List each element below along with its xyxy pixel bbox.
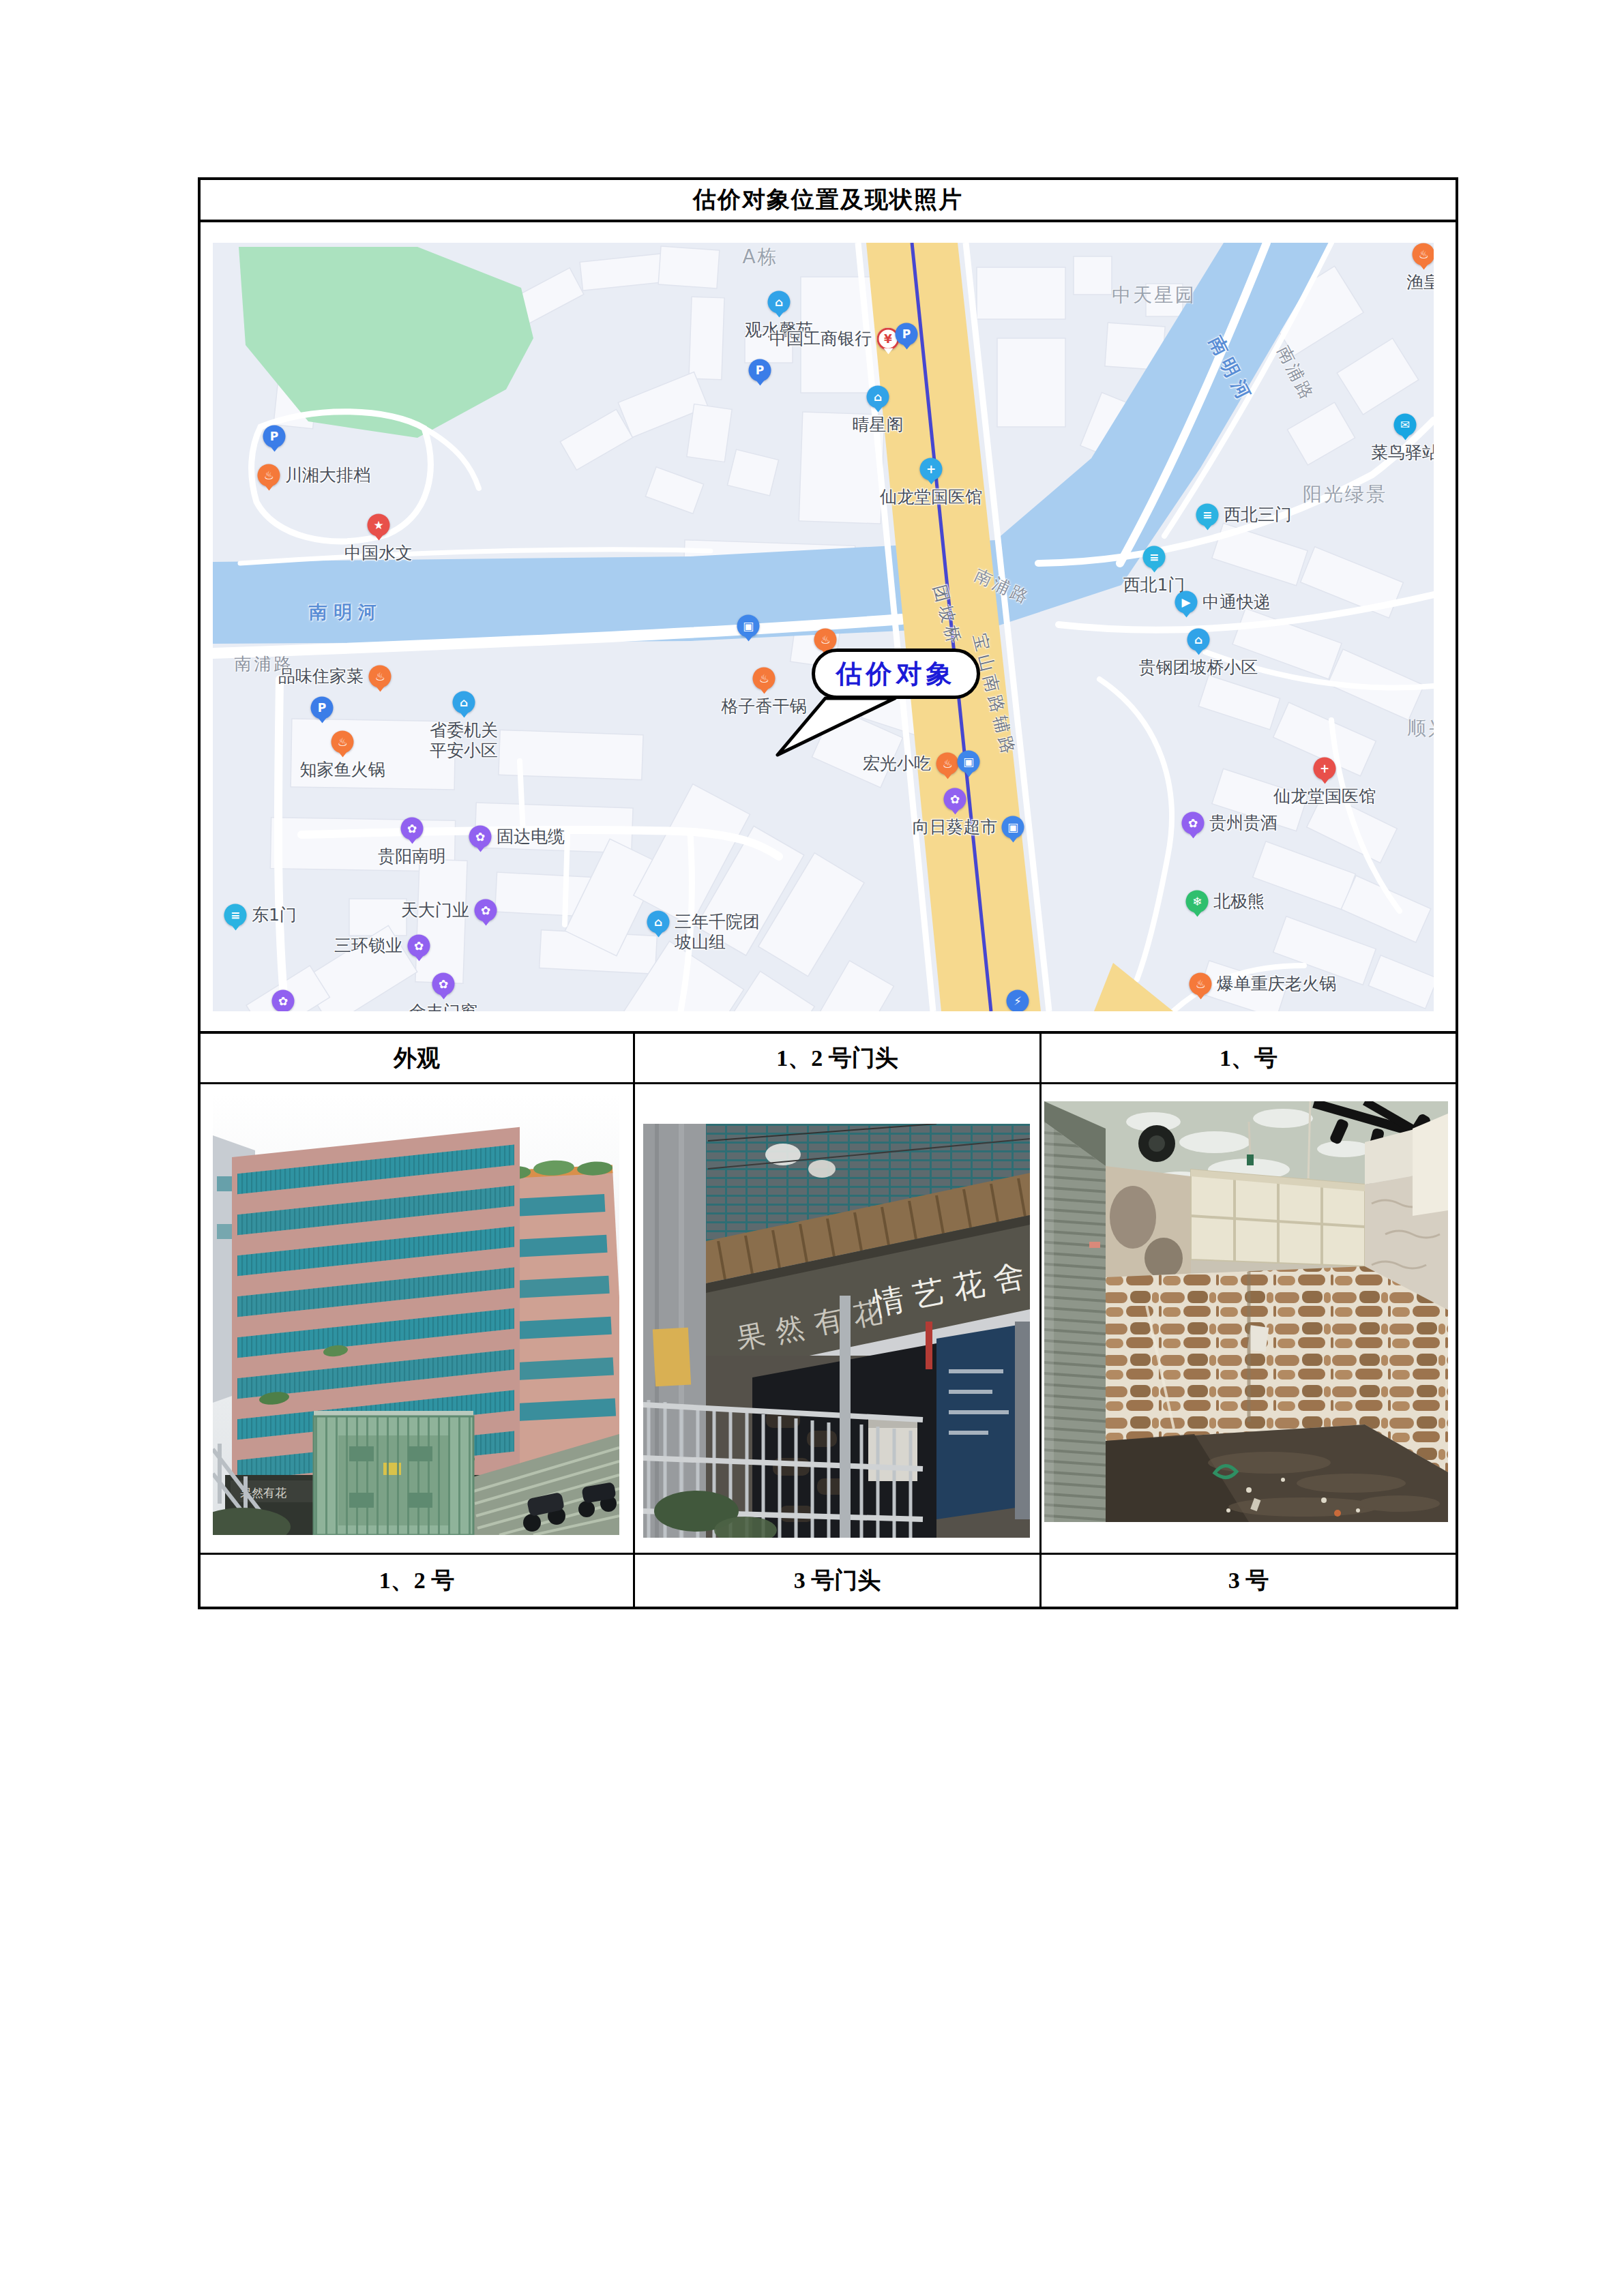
photo-caption: 3 号 xyxy=(1228,1565,1269,1596)
callout-text: 估价对象 xyxy=(836,657,956,691)
bus-stop-icon: ▣ xyxy=(958,751,980,773)
map-poi-label: 东1门 xyxy=(252,905,297,925)
icon-glyph: ♨ xyxy=(820,634,830,646)
hanging-board xyxy=(1413,1114,1448,1216)
interior-photo-illustration xyxy=(1044,1101,1448,1522)
bus-stop-icon: ▣ xyxy=(737,615,760,638)
map-poi-label: 中国工商银行 xyxy=(769,329,872,349)
icon-glyph: ▣ xyxy=(743,621,754,632)
parking-icon: P xyxy=(263,426,286,448)
gate-icon: ≡ xyxy=(1143,546,1166,569)
building-icon: ⌂ xyxy=(867,386,889,408)
photo-location-table: 估价对象位置及现状照片 xyxy=(198,177,1458,1609)
star-place-icon: ★ xyxy=(368,514,390,537)
icon-glyph: ⌂ xyxy=(775,297,783,308)
icon-glyph: + xyxy=(926,464,936,475)
icon-glyph: ≡ xyxy=(231,910,240,921)
column-header: 1、号 xyxy=(1220,1043,1278,1074)
icon-glyph: ⌂ xyxy=(1194,634,1202,646)
map-poi-label: 天大门业 xyxy=(401,900,469,921)
map-poi-label: 爆单重庆老火锅 xyxy=(1217,974,1336,994)
restaurant-icon: ♨ xyxy=(1413,243,1434,266)
icon-glyph: ✿ xyxy=(278,996,288,1007)
shop-icon: ✿ xyxy=(272,990,295,1012)
gate-icon: ≡ xyxy=(224,904,247,927)
exterior-photo: 果然有花 情艺花舍 xyxy=(213,1094,619,1535)
icon-glyph: ✿ xyxy=(1188,818,1198,829)
icon-glyph: ♨ xyxy=(942,758,952,770)
icon-glyph: ▣ xyxy=(1007,822,1018,833)
exterior-photo-illustration: 果然有花 情艺花舍 xyxy=(213,1094,619,1535)
restaurant-icon: ♨ xyxy=(814,629,837,651)
icon-glyph: ✿ xyxy=(439,979,448,990)
icon-glyph: ♨ xyxy=(374,671,385,683)
map-poi-label: 仙龙堂国医馆 xyxy=(880,487,982,507)
icon-glyph: ★ xyxy=(373,520,383,531)
river-label: 南明河 xyxy=(309,600,383,625)
parking-icon: P xyxy=(749,359,771,382)
polar-icon: ❄ xyxy=(1186,891,1209,913)
header-cell-no1: 1、号 xyxy=(1039,1031,1456,1084)
doorway-photo-illustration: 果然有花 情艺花舍 xyxy=(643,1124,1030,1538)
map-poi-label: 向日葵超市 xyxy=(913,817,998,837)
icon-glyph: ▶ xyxy=(1181,597,1190,608)
building-icon: ⌂ xyxy=(647,911,670,934)
header-cell-exterior: 外观 xyxy=(201,1031,633,1084)
map-poi-label: 贵阳南明 xyxy=(378,846,446,867)
location-map: P♨川湘大排档★中国水文♨品味住家菜P♨知家鱼火锅⌂省委机关 平安小区⌂观水馨苑… xyxy=(213,243,1434,1011)
icon-glyph: ✿ xyxy=(950,794,960,805)
icon-glyph: ⌂ xyxy=(654,916,662,928)
icon-glyph: ♨ xyxy=(758,673,769,685)
icon-glyph: ≡ xyxy=(1149,552,1159,563)
photo-caption: 1、2 号 xyxy=(379,1565,455,1596)
callout-bubble: 估价对象 xyxy=(812,648,980,699)
map-poi-label: 晴星阁 xyxy=(853,415,904,435)
icon-glyph: P xyxy=(318,702,326,714)
pink-tape xyxy=(1089,1242,1100,1248)
shop-icon: ✿ xyxy=(944,788,966,811)
doorway-photo: 果然有花 情艺花舍 xyxy=(643,1124,1030,1538)
restaurant-icon: ♨ xyxy=(936,753,959,775)
photo-cell-exterior: 果然有花 情艺花舍 xyxy=(201,1084,633,1553)
icon-glyph: ♨ xyxy=(1195,979,1205,990)
map-poi-label: 固达电缆 xyxy=(497,826,565,847)
map-poi-label: 宏光小吃 xyxy=(863,754,931,774)
shop-icon: ✿ xyxy=(469,826,492,848)
icon-glyph: ♨ xyxy=(263,470,274,481)
building-icon: ⌂ xyxy=(1187,629,1210,651)
building-icon: ⌂ xyxy=(453,691,475,714)
clinic-icon: + xyxy=(1314,758,1336,780)
photo-cell-doorway: 果然有花 情艺花舍 xyxy=(633,1084,1039,1553)
icon-glyph: ✉ xyxy=(1400,419,1410,431)
restaurant-icon: ♨ xyxy=(369,666,392,688)
map-poi-label: 格子香干锅 xyxy=(722,696,807,717)
map-poi-label: 西北三门 xyxy=(1224,505,1292,525)
map-poi-label: 三环锁业 xyxy=(334,936,402,956)
icon-glyph: ✿ xyxy=(407,823,417,835)
icon-glyph: ⌂ xyxy=(460,697,468,709)
map-poi-label: 菜鸟驿站 xyxy=(1371,443,1434,463)
map-poi-label: 中通快递 xyxy=(1202,592,1271,612)
building-icon: ⌂ xyxy=(768,291,791,314)
transformer-cabinet xyxy=(314,1411,473,1535)
gate-icon: ≡ xyxy=(1196,504,1219,526)
page-title: 估价对象位置及现状照片 xyxy=(693,184,963,215)
icon-glyph: P xyxy=(902,329,911,340)
area-label: 中天星园 xyxy=(1112,282,1196,308)
map-poi-label: 知家鱼火锅 xyxy=(300,760,385,780)
map-poi-label: 川湘大排档 xyxy=(285,465,370,486)
stone-wall-back xyxy=(1106,1266,1365,1441)
map-poi-label: 贵州贵酒 xyxy=(1209,813,1278,833)
icon-glyph: P xyxy=(270,431,278,443)
map-poi-label: 中国水文 xyxy=(344,543,413,563)
charging-icon: ⚡ xyxy=(1007,990,1029,1012)
restaurant-icon: ♨ xyxy=(331,731,354,754)
photo-caption: 3 号门头 xyxy=(794,1565,881,1596)
table-title-cell: 估价对象位置及现状照片 xyxy=(201,180,1456,222)
map-poi-label: 西北1门 xyxy=(1123,575,1185,595)
icon-glyph: ≡ xyxy=(1202,509,1212,521)
map-poi-label: 贵钢团坡桥小区 xyxy=(1139,657,1258,678)
map-cell: P♨川湘大排档★中国水文♨品味住家菜P♨知家鱼火锅⌂省委机关 平安小区⌂观水馨苑… xyxy=(201,222,1456,1031)
orange-debris xyxy=(1334,1510,1341,1517)
icon-glyph: ♨ xyxy=(337,736,347,748)
icon-glyph: ▣ xyxy=(963,756,974,768)
icon-glyph: ¥ xyxy=(884,333,892,345)
icon-glyph: ✿ xyxy=(475,831,485,843)
parking-icon: P xyxy=(896,323,918,346)
red-banner xyxy=(926,1322,932,1369)
column-header: 外观 xyxy=(394,1043,440,1074)
area-label: 顺兴 xyxy=(1407,715,1434,741)
document-page: 估价对象位置及现状照片 xyxy=(0,0,1624,2296)
icon-glyph: ❄ xyxy=(1192,896,1202,908)
column-header: 1、2 号门头 xyxy=(776,1043,898,1074)
map-poi-label: 渔皇 xyxy=(1406,272,1434,293)
area-label: A栋 xyxy=(742,244,778,270)
caption-cell-3-door: 3 号门头 xyxy=(633,1553,1039,1607)
caption-cell-12: 1、2 号 xyxy=(201,1553,633,1607)
fence-post xyxy=(840,1296,851,1538)
icon-glyph: ✿ xyxy=(481,905,490,916)
header-cell-doorway-12: 1、2 号门头 xyxy=(633,1031,1039,1084)
icon-glyph: ♨ xyxy=(1418,249,1428,260)
photo-cell-interior xyxy=(1039,1084,1456,1553)
icon-glyph: ⚡ xyxy=(1014,996,1022,1007)
shop-icon: ✿ xyxy=(401,818,424,840)
icon-glyph: ✿ xyxy=(414,940,424,952)
map-poi-label: 省委机关 平安小区 xyxy=(430,720,498,761)
interior-photo xyxy=(1044,1101,1448,1522)
restaurant-icon: ♨ xyxy=(753,668,776,690)
restaurant-icon: ♨ xyxy=(1190,973,1212,996)
shop-icon: ✿ xyxy=(432,973,455,996)
shop-icon: ✿ xyxy=(475,899,497,922)
shop-icon: ✿ xyxy=(408,935,430,957)
restaurant-icon: ♨ xyxy=(258,464,280,487)
medicine-icon: + xyxy=(920,458,943,481)
bus-stop-icon: ▣ xyxy=(1002,816,1024,839)
shelving-unit xyxy=(1191,1169,1365,1266)
caption-cell-3: 3 号 xyxy=(1039,1553,1456,1607)
map-poi-label: 仙龙堂国医馆 xyxy=(1273,786,1376,807)
small-sign xyxy=(653,1328,691,1387)
map-poi-label: 品味住家菜 xyxy=(278,666,364,687)
map-poi-label: 金丰门窗 xyxy=(409,1002,477,1011)
map-poi-label: 北极熊 xyxy=(1213,891,1265,912)
shop-icon: ✿ xyxy=(1182,812,1205,835)
parcel-station-icon: ✉ xyxy=(1394,414,1417,436)
icon-glyph: P xyxy=(756,365,764,376)
area-label: 阳光绿景 xyxy=(1303,481,1387,507)
map-poi-label: 三年千院团 坡山组 xyxy=(675,912,760,953)
parking-icon: P xyxy=(311,697,334,719)
courier-icon: ▶ xyxy=(1175,591,1198,614)
icon-glyph: ⌂ xyxy=(874,391,882,403)
icon-glyph: + xyxy=(1320,763,1329,775)
